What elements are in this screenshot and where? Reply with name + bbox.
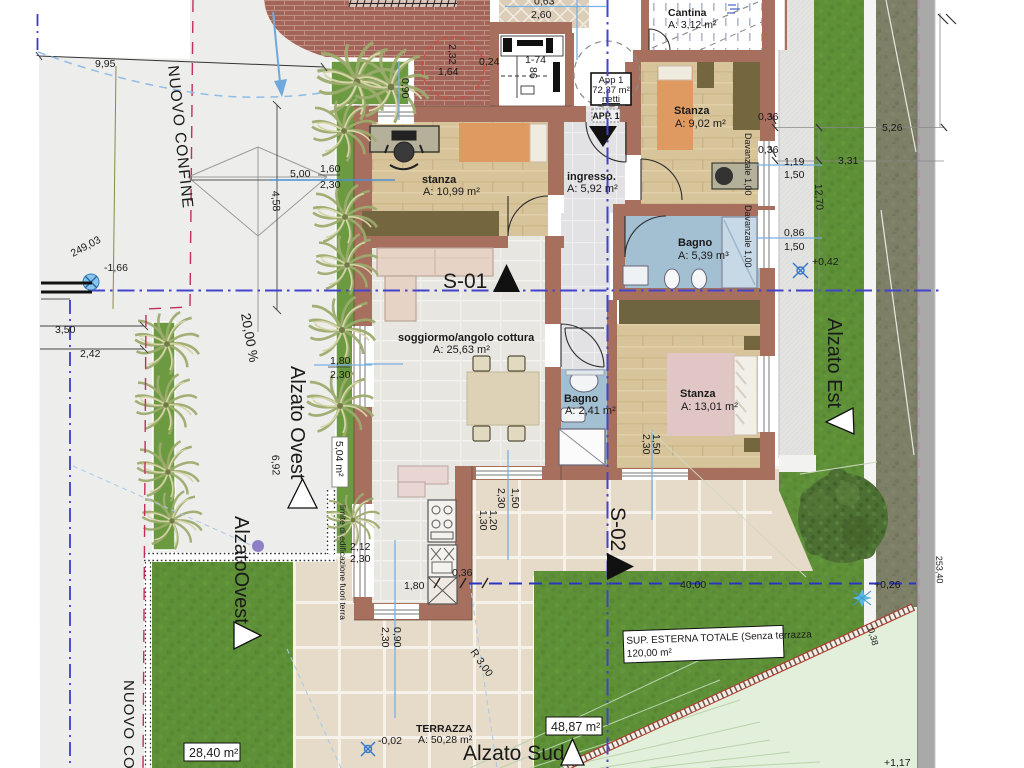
svg-text:netti: netti bbox=[602, 94, 620, 105]
svg-text:A: 13,01 m²: A: 13,01 m² bbox=[681, 401, 738, 413]
svg-text:2,60: 2,60 bbox=[531, 9, 552, 21]
svg-text:stanza: stanza bbox=[422, 174, 457, 186]
svg-text:A: 5,92 m²: A: 5,92 m² bbox=[567, 183, 618, 195]
svg-text:0,86: 0,86 bbox=[784, 227, 805, 239]
svg-text:A: 10,99 m²: A: 10,99 m² bbox=[423, 186, 480, 198]
svg-text:1,64: 1,64 bbox=[438, 66, 459, 78]
svg-text:2,30: 2,30 bbox=[640, 434, 652, 455]
svg-text:1,50: 1,50 bbox=[509, 488, 521, 509]
svg-text:Davanzale 1,00: Davanzale 1,00 bbox=[743, 205, 753, 268]
svg-text:1,50: 1,50 bbox=[784, 169, 805, 181]
svg-text:0,36: 0,36 bbox=[758, 111, 779, 123]
svg-text:A: 9,02 m²: A: 9,02 m² bbox=[675, 118, 726, 130]
svg-text:A: 2,41 m²: A: 2,41 m² bbox=[565, 405, 616, 417]
svg-text:soggiormo/angolo cottura: soggiormo/angolo cottura bbox=[398, 332, 535, 344]
svg-text:Alzato Sud: Alzato Sud bbox=[463, 742, 565, 765]
svg-text:0,36: 0,36 bbox=[758, 144, 779, 156]
svg-text:Davanzale 1,00: Davanzale 1,00 bbox=[743, 133, 753, 196]
svg-text:Alzato Est: Alzato Est bbox=[823, 318, 845, 408]
svg-text:2,32: 2,32 bbox=[446, 44, 458, 65]
svg-text:3,50: 3,50 bbox=[55, 324, 76, 336]
svg-text:Cantina: Cantina bbox=[668, 7, 707, 19]
svg-text:2,30: 2,30 bbox=[320, 179, 341, 191]
svg-text:APP. 1: APP. 1 bbox=[592, 111, 619, 121]
svg-text:-1,66: -1,66 bbox=[104, 262, 128, 274]
svg-text:9,95: 9,95 bbox=[95, 58, 116, 70]
svg-text:5,00: 5,00 bbox=[290, 168, 311, 180]
svg-text:1,60: 1,60 bbox=[320, 163, 341, 175]
svg-text:+0,26: +0,26 bbox=[874, 579, 901, 591]
svg-text:2,30: 2,30 bbox=[379, 627, 391, 648]
svg-text:AlzatoOvest: AlzatoOvest bbox=[230, 516, 252, 624]
svg-text:0,90: 0,90 bbox=[391, 627, 403, 648]
svg-text:1,50: 1,50 bbox=[784, 241, 805, 253]
svg-text:3,31: 3,31 bbox=[838, 155, 859, 167]
svg-text:6,92: 6,92 bbox=[269, 455, 282, 476]
svg-text:Bagno: Bagno bbox=[678, 237, 713, 249]
svg-text:120,00 m²: 120,00 m² bbox=[627, 647, 673, 660]
svg-text:48,87 m²: 48,87 m² bbox=[551, 720, 600, 734]
svg-text:S-01: S-01 bbox=[443, 270, 487, 293]
svg-text:Alzato Ovest: Alzato Ovest bbox=[286, 366, 308, 480]
svg-text:1,19: 1,19 bbox=[784, 156, 805, 168]
svg-text:0,90: 0,90 bbox=[399, 78, 411, 99]
svg-text:5,26: 5,26 bbox=[882, 122, 903, 134]
svg-text:1,30: 1,30 bbox=[477, 510, 489, 531]
svg-text:0,63: 0,63 bbox=[534, 0, 555, 8]
svg-text:limite di edificazione fuori t: limite di edificazione fuori terra bbox=[338, 505, 348, 620]
svg-text:Stanza: Stanza bbox=[674, 105, 710, 117]
svg-text:S-02: S-02 bbox=[606, 507, 629, 551]
svg-text:86: 86 bbox=[527, 67, 539, 79]
svg-text:A: 5,39 m³: A: 5,39 m³ bbox=[678, 250, 729, 262]
svg-text:+0,42: +0,42 bbox=[812, 256, 839, 268]
svg-text:2,12: 2,12 bbox=[350, 541, 371, 553]
svg-text:1,80: 1,80 bbox=[330, 355, 351, 367]
svg-text:2,30: 2,30 bbox=[350, 553, 371, 565]
svg-text:1,80: 1,80 bbox=[404, 580, 425, 592]
svg-text:ingresso.: ingresso. bbox=[567, 171, 616, 183]
svg-text:-0,02: -0,02 bbox=[378, 735, 402, 747]
svg-text:2,42: 2,42 bbox=[80, 348, 101, 360]
svg-text:Bagno: Bagno bbox=[564, 393, 599, 405]
svg-text:1-74: 1-74 bbox=[525, 54, 546, 66]
svg-text:5,04 m²: 5,04 m² bbox=[333, 441, 345, 477]
svg-text:4,58: 4,58 bbox=[269, 191, 282, 212]
svg-text:40,00: 40,00 bbox=[680, 579, 706, 591]
svg-text:2,30: 2,30 bbox=[330, 369, 351, 381]
svg-text:253,40: 253,40 bbox=[934, 556, 945, 584]
svg-text:28,40 m²: 28,40 m² bbox=[189, 746, 238, 760]
svg-text:A: 25,63 m²: A: 25,63 m² bbox=[433, 344, 490, 356]
svg-text:12,70: 12,70 bbox=[812, 184, 825, 211]
svg-text:A: 3,12 m²: A: 3,12 m² bbox=[668, 19, 717, 31]
svg-text:0,24: 0,24 bbox=[479, 56, 500, 68]
svg-text:2,30: 2,30 bbox=[495, 488, 507, 509]
svg-text:+1,17: +1,17 bbox=[884, 757, 911, 768]
svg-text:0,36: 0,36 bbox=[452, 567, 473, 579]
svg-text:NUOVO CONFINE: NUOVO CONFINE bbox=[120, 680, 137, 768]
svg-text:Stanza: Stanza bbox=[680, 388, 716, 400]
